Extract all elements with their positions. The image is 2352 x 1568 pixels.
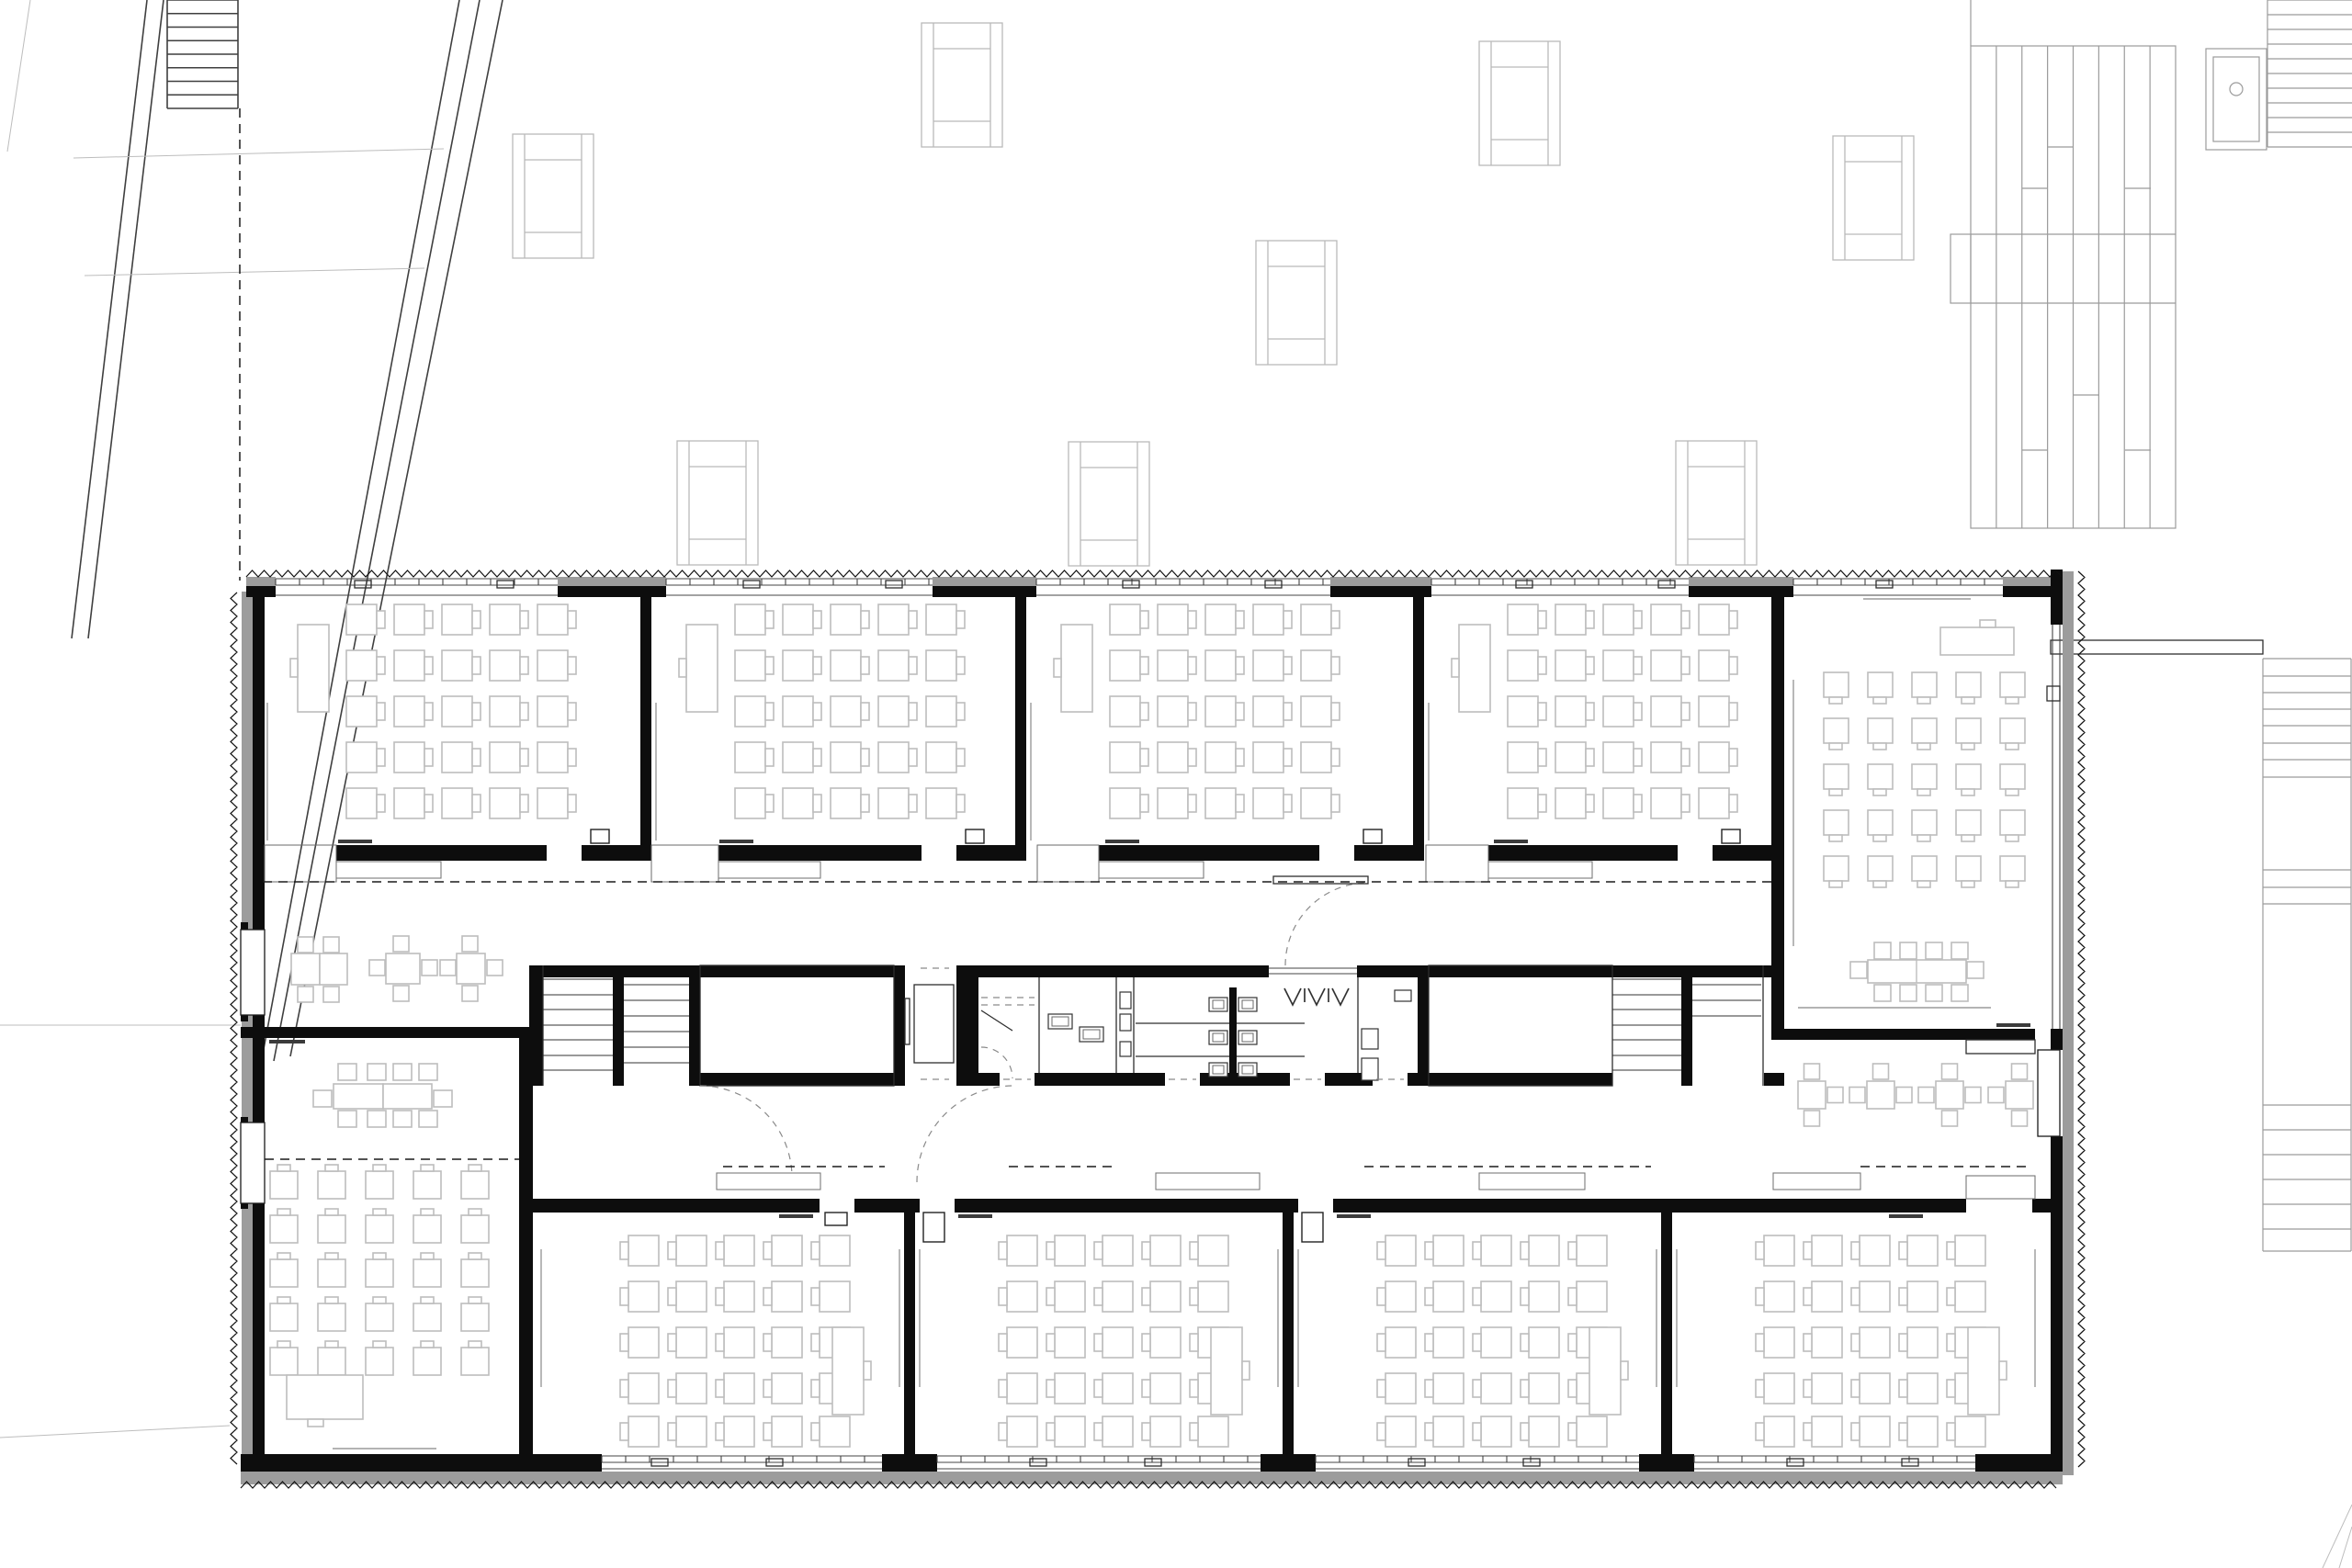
student-desk <box>1253 696 1283 727</box>
student-desk <box>442 696 472 727</box>
chair <box>2012 1111 2028 1126</box>
chair <box>1331 611 1340 628</box>
student-desk <box>676 1235 707 1266</box>
door-panel <box>241 1122 265 1203</box>
chair <box>1236 703 1244 720</box>
chair <box>520 657 528 674</box>
student-desk <box>1555 788 1586 818</box>
student-desk <box>490 604 520 635</box>
chair <box>393 986 409 1001</box>
chair <box>313 1090 332 1107</box>
chair <box>568 703 576 720</box>
chair <box>338 1064 356 1080</box>
chair <box>1965 1088 1981 1103</box>
student-desk <box>831 650 861 681</box>
chair <box>1926 985 1942 1001</box>
chair <box>861 795 869 812</box>
student-desk <box>628 1416 659 1447</box>
chair-back <box>2006 835 2018 841</box>
site-corner-stair <box>2267 0 2352 147</box>
student-desk <box>628 1327 659 1358</box>
chair <box>1568 1242 1577 1259</box>
student-desk <box>1385 1416 1416 1447</box>
chair <box>1899 1423 1907 1440</box>
corridor-table <box>1798 1081 1826 1109</box>
classroom-bottom-2 <box>920 1235 1278 1447</box>
wall-lining-band <box>1330 577 1431 586</box>
student-desk <box>1301 650 1331 681</box>
student-desk <box>724 1373 754 1404</box>
chair <box>1874 985 1891 1001</box>
chair <box>765 703 774 720</box>
chair <box>811 1242 820 1259</box>
chair <box>811 1380 820 1397</box>
chair <box>1521 1423 1529 1440</box>
student-desk <box>1508 604 1538 635</box>
student-desk <box>1205 604 1236 635</box>
student-desk <box>878 696 909 727</box>
wall <box>1283 1213 1294 1454</box>
chair <box>1912 810 1937 835</box>
chair <box>1586 749 1594 766</box>
wc-fixture <box>1362 1029 1378 1049</box>
wall-lining-band <box>933 577 1036 586</box>
chair <box>1729 611 1737 628</box>
student-desk <box>1651 650 1681 681</box>
site-walkway <box>1951 0 2176 528</box>
teacher-chair <box>1242 1361 1249 1380</box>
chair <box>1046 1423 1055 1440</box>
student-desk <box>783 696 813 727</box>
wall <box>1354 845 1413 861</box>
terrain-line <box>2323 1505 2352 1568</box>
wall <box>253 597 265 930</box>
corridor-table <box>320 953 347 985</box>
chair <box>1756 1423 1764 1440</box>
chair <box>1377 1288 1385 1305</box>
chair <box>1094 1334 1102 1351</box>
chair-back <box>2006 881 2018 887</box>
chair <box>1804 1111 1820 1126</box>
wall-lining-band <box>558 577 666 586</box>
chair-back <box>277 1209 290 1215</box>
chair <box>1681 795 1690 812</box>
wall <box>521 1199 820 1213</box>
wall <box>1333 1199 1966 1213</box>
door-leaf <box>1302 1213 1323 1242</box>
student-desk <box>926 650 956 681</box>
chair-back <box>1873 835 1886 841</box>
chair <box>1188 611 1196 628</box>
chair <box>1473 1242 1481 1259</box>
window-mullion <box>1876 581 1893 588</box>
chair <box>909 795 917 812</box>
chair-back <box>373 1341 386 1348</box>
chair <box>367 1064 386 1080</box>
rect <box>2213 57 2259 141</box>
chair <box>1868 810 1893 835</box>
wall <box>241 1027 542 1038</box>
chair <box>1899 1334 1907 1351</box>
student-desk <box>1508 788 1538 818</box>
student-desk <box>831 604 861 635</box>
student-desk <box>1860 1416 1890 1447</box>
student-desk <box>676 1373 707 1404</box>
wall <box>1771 1029 2035 1040</box>
student-desk <box>1812 1281 1842 1312</box>
student-desk <box>1907 1373 1938 1404</box>
student-desk <box>394 696 424 727</box>
chair <box>909 657 917 674</box>
chair <box>620 1423 628 1440</box>
chair <box>1283 749 1292 766</box>
student-desk <box>1198 1281 1228 1312</box>
chair-back <box>373 1209 386 1215</box>
student-desk <box>1055 1327 1085 1358</box>
teacher-chair <box>290 659 298 677</box>
chair <box>1521 1242 1529 1259</box>
teacher-desk <box>1459 625 1490 712</box>
chair <box>1899 1242 1907 1259</box>
wall-lining-band <box>2063 571 2074 1475</box>
student-desk <box>1102 1416 1133 1447</box>
student-desk <box>1651 742 1681 773</box>
chair <box>1873 1064 1889 1079</box>
chair <box>956 657 965 674</box>
chair <box>461 1259 489 1287</box>
student-desk <box>1603 696 1634 727</box>
chair <box>1425 1334 1433 1351</box>
teacher-chair <box>864 1361 871 1380</box>
student-desk <box>820 1416 850 1447</box>
chair-back <box>421 1297 434 1303</box>
chair <box>1190 1242 1198 1259</box>
chair <box>1729 795 1737 812</box>
chair <box>472 657 481 674</box>
chair <box>1377 1334 1385 1351</box>
chair-back <box>1829 881 1842 887</box>
corridor-bench <box>336 862 441 878</box>
student-desk <box>628 1373 659 1404</box>
wall <box>246 586 276 597</box>
window-mullion <box>743 581 760 588</box>
chair <box>668 1380 676 1397</box>
wall <box>241 1454 602 1472</box>
classroom-top-1 <box>267 604 576 840</box>
wall <box>1330 586 1431 597</box>
classroom-top-4 <box>1429 604 1737 840</box>
student-desk <box>1907 1281 1938 1312</box>
student-desk <box>1301 788 1331 818</box>
teacher-desk <box>1968 1327 1999 1415</box>
student-desk <box>772 1416 802 1447</box>
chair <box>1956 718 1981 743</box>
chair <box>1942 1111 1958 1126</box>
chair-back <box>277 1253 290 1259</box>
chair <box>270 1171 298 1199</box>
chair <box>520 795 528 812</box>
chair <box>999 1423 1007 1440</box>
walkway-bench <box>1951 234 1971 303</box>
chair <box>413 1171 441 1199</box>
chair <box>813 611 821 628</box>
chair <box>811 1288 820 1305</box>
window-mullion <box>2047 686 2060 701</box>
window-mullion <box>355 581 371 588</box>
wall <box>1035 1073 1165 1086</box>
student-desk <box>772 1373 802 1404</box>
chair <box>461 1171 489 1199</box>
student-desk <box>820 1281 850 1312</box>
chair <box>461 1215 489 1243</box>
chair <box>1190 1334 1198 1351</box>
student-desk <box>1764 1281 1794 1312</box>
chair <box>1868 856 1893 881</box>
student-desk <box>1812 1416 1842 1447</box>
terrain-line <box>2339 1527 2352 1568</box>
chair <box>1874 942 1891 959</box>
window-mullion <box>1516 581 1532 588</box>
wall <box>2051 570 2063 625</box>
chair <box>716 1334 724 1351</box>
student-desk <box>1158 604 1188 635</box>
chair <box>472 611 481 628</box>
chair <box>419 1111 437 1127</box>
student-desk <box>1651 604 1681 635</box>
wall <box>700 1073 894 1086</box>
teacher-desk <box>1211 1327 1242 1415</box>
chair <box>440 960 456 976</box>
student-desk <box>1055 1281 1085 1312</box>
chair <box>1586 611 1594 628</box>
sink-counter <box>981 1010 1012 1031</box>
chair-back <box>1917 881 1930 887</box>
corridor-bench <box>1099 862 1204 878</box>
student-desk <box>1007 1281 1037 1312</box>
wall <box>1771 597 1784 1040</box>
student-desk <box>1955 1235 1985 1266</box>
chair <box>424 749 433 766</box>
student-desk <box>1529 1416 1559 1447</box>
chair <box>999 1334 1007 1351</box>
chair <box>1868 764 1893 789</box>
wall <box>854 1199 920 1213</box>
chair-back <box>2006 743 2018 750</box>
chair <box>1425 1423 1433 1440</box>
chair <box>1140 611 1148 628</box>
skylights <box>513 23 1914 566</box>
chair <box>1868 672 1893 697</box>
student-desk <box>1577 1235 1607 1266</box>
ramp-line <box>72 0 147 638</box>
core <box>543 876 1763 1182</box>
chair <box>1142 1288 1150 1305</box>
classrooms-top <box>267 604 1740 843</box>
student-desk <box>490 788 520 818</box>
wall <box>1413 597 1424 861</box>
classroom-bottom-1 <box>541 1235 899 1447</box>
student-desk <box>490 742 520 773</box>
toilet <box>1238 1031 1257 1044</box>
teacher-chair <box>1054 659 1061 677</box>
chair <box>813 657 821 674</box>
chair <box>1827 1088 1843 1103</box>
student-desk <box>1150 1416 1181 1447</box>
wall <box>1713 845 1771 861</box>
chair <box>620 1334 628 1351</box>
duct-shaft <box>1120 992 1131 1009</box>
floor-plan-page <box>0 0 2352 1568</box>
chair-back <box>1962 789 1974 795</box>
chair-back <box>421 1209 434 1215</box>
chair <box>1331 749 1340 766</box>
toilet <box>1209 998 1227 1011</box>
chair <box>1473 1423 1481 1440</box>
chair <box>2000 672 2025 697</box>
chair <box>620 1242 628 1259</box>
student-desk <box>1481 1327 1511 1358</box>
chair <box>1868 718 1893 743</box>
chair <box>520 703 528 720</box>
teacher-chair <box>1621 1361 1628 1380</box>
chair <box>1140 657 1148 674</box>
student-desk <box>1529 1373 1559 1404</box>
chair <box>1190 1423 1198 1440</box>
chair <box>323 937 339 953</box>
chair <box>765 611 774 628</box>
student-desk <box>1907 1327 1938 1358</box>
door-mark <box>1932 1207 1966 1213</box>
door-panel <box>2038 1050 2060 1136</box>
chair <box>424 795 433 812</box>
student-desk <box>1150 1281 1181 1312</box>
window-recess <box>1037 845 1099 882</box>
student-desk <box>1007 1235 1037 1266</box>
terrain-line <box>0 1426 230 1438</box>
wall <box>1975 1454 2063 1472</box>
student-desk <box>735 788 765 818</box>
student-desk <box>1812 1373 1842 1404</box>
chair <box>1681 657 1690 674</box>
student-desk <box>1764 1416 1794 1447</box>
student-desk <box>1529 1235 1559 1266</box>
student-desk <box>1955 1416 1985 1447</box>
chair <box>1912 672 1937 697</box>
student-desk <box>1508 696 1538 727</box>
chair <box>318 1303 345 1331</box>
teacher-chair <box>1999 1361 2007 1380</box>
student-desk <box>1158 788 1188 818</box>
chair <box>1538 611 1546 628</box>
elevator-car <box>914 985 954 1063</box>
chair-back <box>1917 743 1930 750</box>
student-desk <box>1651 696 1681 727</box>
chair <box>318 1215 345 1243</box>
student-desk <box>1907 1416 1938 1447</box>
student-desk <box>1508 742 1538 773</box>
student-desk <box>735 604 765 635</box>
student-desk <box>1860 1373 1890 1404</box>
student-desk <box>1603 742 1634 773</box>
student-desk <box>1385 1327 1416 1358</box>
wall <box>1488 845 1678 861</box>
chair <box>393 1064 412 1080</box>
chair <box>2000 856 2025 881</box>
chair <box>909 749 917 766</box>
stairwell-void <box>1429 965 1612 1086</box>
stairwell-void <box>700 965 894 1086</box>
chair <box>813 749 821 766</box>
chair <box>520 749 528 766</box>
chair <box>909 703 917 720</box>
chair-back <box>1962 697 1974 704</box>
wall-lining-band <box>241 1472 2063 1484</box>
chair <box>956 795 965 812</box>
chair <box>1681 611 1690 628</box>
chair <box>1849 1088 1865 1103</box>
chair-back <box>1873 697 1886 704</box>
chair <box>1568 1334 1577 1351</box>
wall-lining-band <box>1689 577 1793 586</box>
student-desk <box>1433 1281 1464 1312</box>
student-desk <box>628 1281 659 1312</box>
toilet <box>1238 1063 1257 1077</box>
student-desk <box>926 742 956 773</box>
student-desk <box>783 650 813 681</box>
student-desk <box>1860 1235 1890 1266</box>
chair <box>716 1288 724 1305</box>
chair <box>318 1348 345 1375</box>
chair <box>668 1242 676 1259</box>
chair <box>323 987 339 1002</box>
student-desk <box>537 604 568 635</box>
chair <box>1521 1288 1529 1305</box>
chair-back <box>373 1297 386 1303</box>
student-desk <box>878 650 909 681</box>
chair <box>462 936 478 952</box>
chair <box>716 1423 724 1440</box>
chair <box>461 1303 489 1331</box>
student-desk <box>1301 742 1331 773</box>
chair <box>1473 1334 1481 1351</box>
chair <box>1634 611 1642 628</box>
chair <box>1947 1334 1955 1351</box>
chair <box>763 1423 772 1440</box>
student-desk <box>1481 1281 1511 1312</box>
chair <box>1425 1242 1433 1259</box>
student-desk <box>1577 1416 1607 1447</box>
chair <box>472 703 481 720</box>
chair <box>620 1380 628 1397</box>
wall <box>967 965 1269 977</box>
chair <box>1331 703 1340 720</box>
student-desk <box>537 696 568 727</box>
urinal-v <box>1284 988 1301 1005</box>
teacher-desk <box>287 1375 363 1419</box>
student-desk <box>1385 1235 1416 1266</box>
chair <box>763 1334 772 1351</box>
chair <box>413 1259 441 1287</box>
student-desk <box>926 604 956 635</box>
student-desk <box>1385 1373 1416 1404</box>
chair <box>1729 703 1737 720</box>
student-desk <box>1102 1327 1133 1358</box>
wall <box>640 597 651 861</box>
chair <box>1851 1423 1860 1440</box>
teacher-desk <box>1061 625 1092 712</box>
serration-edge <box>231 592 237 1464</box>
chair <box>1188 749 1196 766</box>
